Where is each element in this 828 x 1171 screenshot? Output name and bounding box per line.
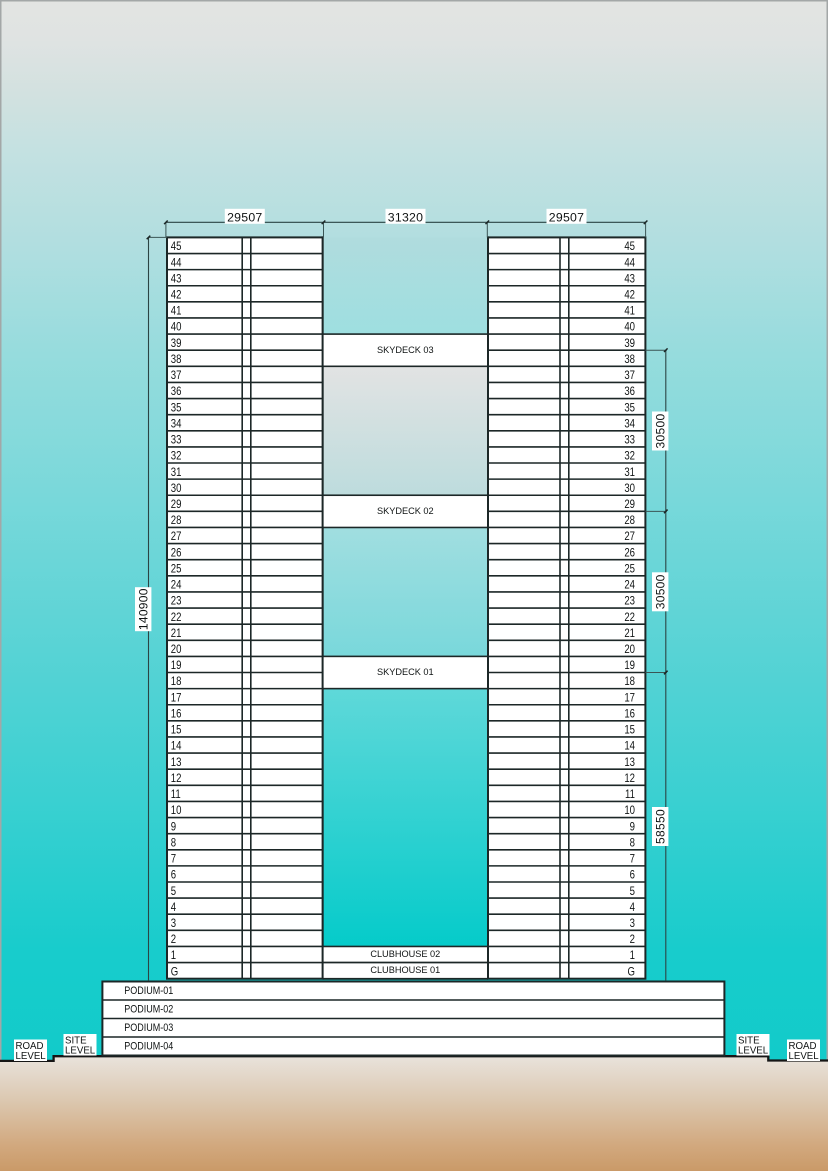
svg-text:4: 4 bbox=[171, 901, 176, 914]
svg-text:38: 38 bbox=[171, 353, 182, 366]
svg-text:19: 19 bbox=[624, 659, 635, 672]
svg-text:39: 39 bbox=[624, 337, 635, 350]
svg-text:LEVEL: LEVEL bbox=[65, 1045, 96, 1056]
svg-text:41: 41 bbox=[171, 305, 182, 318]
svg-text:29507: 29507 bbox=[227, 210, 262, 224]
svg-text:LEVEL: LEVEL bbox=[16, 1051, 47, 1062]
svg-text:15: 15 bbox=[171, 724, 182, 737]
svg-text:26: 26 bbox=[171, 546, 182, 559]
svg-text:8: 8 bbox=[171, 836, 176, 849]
svg-text:8: 8 bbox=[630, 836, 635, 849]
svg-text:SKYDECK 03: SKYDECK 03 bbox=[377, 345, 434, 355]
svg-text:SKYDECK 02: SKYDECK 02 bbox=[377, 506, 434, 516]
svg-text:G: G bbox=[628, 965, 635, 978]
svg-text:25: 25 bbox=[171, 563, 182, 576]
svg-text:25: 25 bbox=[624, 563, 635, 576]
svg-text:41: 41 bbox=[624, 305, 635, 318]
svg-text:30: 30 bbox=[171, 482, 182, 495]
svg-text:2: 2 bbox=[171, 933, 176, 946]
svg-text:36: 36 bbox=[171, 385, 182, 398]
svg-text:10: 10 bbox=[624, 804, 635, 817]
svg-text:26: 26 bbox=[624, 546, 635, 559]
svg-text:33: 33 bbox=[171, 434, 182, 447]
svg-text:35: 35 bbox=[624, 401, 635, 414]
svg-text:7: 7 bbox=[630, 853, 635, 866]
svg-text:15: 15 bbox=[624, 724, 635, 737]
svg-text:24: 24 bbox=[171, 579, 182, 592]
svg-text:PODIUM-02: PODIUM-02 bbox=[124, 1004, 173, 1016]
svg-text:23: 23 bbox=[624, 595, 635, 608]
svg-text:11: 11 bbox=[625, 788, 635, 801]
svg-text:16: 16 bbox=[171, 708, 182, 721]
svg-text:22: 22 bbox=[171, 611, 182, 624]
svg-text:LEVEL: LEVEL bbox=[738, 1045, 769, 1056]
svg-text:32: 32 bbox=[624, 450, 635, 463]
svg-text:38: 38 bbox=[624, 353, 635, 366]
svg-text:37: 37 bbox=[624, 369, 635, 382]
svg-text:30500: 30500 bbox=[654, 414, 668, 449]
svg-text:31: 31 bbox=[624, 466, 635, 479]
svg-text:CLUBHOUSE 01: CLUBHOUSE 01 bbox=[370, 965, 440, 975]
svg-text:20: 20 bbox=[624, 643, 635, 656]
svg-text:9: 9 bbox=[630, 820, 635, 833]
svg-text:40: 40 bbox=[624, 321, 635, 334]
svg-text:33: 33 bbox=[624, 434, 635, 447]
svg-text:PODIUM-03: PODIUM-03 bbox=[124, 1022, 173, 1034]
svg-text:10: 10 bbox=[171, 804, 182, 817]
svg-text:11: 11 bbox=[171, 788, 181, 801]
svg-text:29: 29 bbox=[624, 498, 635, 511]
svg-text:32: 32 bbox=[171, 450, 182, 463]
svg-text:40: 40 bbox=[171, 321, 182, 334]
svg-text:18: 18 bbox=[171, 675, 182, 688]
svg-text:9: 9 bbox=[171, 820, 176, 833]
svg-text:G: G bbox=[171, 965, 178, 978]
svg-text:20: 20 bbox=[171, 643, 182, 656]
svg-text:28: 28 bbox=[171, 514, 182, 527]
svg-text:28: 28 bbox=[624, 514, 635, 527]
svg-text:PODIUM-04: PODIUM-04 bbox=[124, 1041, 173, 1053]
svg-text:42: 42 bbox=[171, 289, 182, 302]
svg-text:14: 14 bbox=[624, 740, 635, 753]
svg-text:1: 1 bbox=[630, 949, 635, 962]
svg-text:21: 21 bbox=[171, 627, 182, 640]
svg-text:140900: 140900 bbox=[137, 588, 151, 630]
svg-text:3: 3 bbox=[630, 917, 635, 930]
svg-text:36: 36 bbox=[624, 385, 635, 398]
svg-text:21: 21 bbox=[624, 627, 635, 640]
svg-text:29: 29 bbox=[171, 498, 182, 511]
svg-text:44: 44 bbox=[171, 256, 182, 269]
svg-text:4: 4 bbox=[630, 901, 635, 914]
svg-text:22: 22 bbox=[624, 611, 635, 624]
svg-text:3: 3 bbox=[171, 917, 176, 930]
svg-text:18: 18 bbox=[624, 675, 635, 688]
svg-text:44: 44 bbox=[624, 256, 635, 269]
svg-text:12: 12 bbox=[624, 772, 635, 785]
svg-text:19: 19 bbox=[171, 659, 182, 672]
svg-text:43: 43 bbox=[624, 272, 635, 285]
svg-text:6: 6 bbox=[630, 869, 635, 882]
svg-text:45: 45 bbox=[171, 240, 182, 253]
svg-text:35: 35 bbox=[171, 401, 182, 414]
svg-text:16: 16 bbox=[624, 708, 635, 721]
svg-text:SKYDECK 01: SKYDECK 01 bbox=[377, 667, 434, 677]
svg-text:27: 27 bbox=[624, 530, 635, 543]
svg-text:24: 24 bbox=[624, 579, 635, 592]
svg-text:1: 1 bbox=[171, 949, 176, 962]
svg-text:43: 43 bbox=[171, 272, 182, 285]
svg-text:31320: 31320 bbox=[388, 210, 423, 224]
svg-text:37: 37 bbox=[171, 369, 182, 382]
svg-text:13: 13 bbox=[624, 756, 635, 769]
svg-text:23: 23 bbox=[171, 595, 182, 608]
svg-text:14: 14 bbox=[171, 740, 182, 753]
svg-text:30500: 30500 bbox=[654, 574, 668, 609]
svg-text:31: 31 bbox=[171, 466, 182, 479]
svg-text:27: 27 bbox=[171, 530, 182, 543]
svg-text:13: 13 bbox=[171, 756, 182, 769]
svg-text:CLUBHOUSE 02: CLUBHOUSE 02 bbox=[370, 949, 440, 959]
svg-text:12: 12 bbox=[171, 772, 182, 785]
svg-text:29507: 29507 bbox=[549, 210, 584, 224]
svg-text:39: 39 bbox=[171, 337, 182, 350]
svg-text:30: 30 bbox=[624, 482, 635, 495]
svg-text:34: 34 bbox=[624, 417, 635, 430]
svg-text:58550: 58550 bbox=[654, 809, 668, 844]
svg-text:LEVEL: LEVEL bbox=[789, 1051, 820, 1062]
svg-text:45: 45 bbox=[624, 240, 635, 253]
svg-text:7: 7 bbox=[171, 853, 176, 866]
svg-text:2: 2 bbox=[630, 933, 635, 946]
svg-text:17: 17 bbox=[624, 691, 635, 704]
svg-text:34: 34 bbox=[171, 417, 182, 430]
svg-text:5: 5 bbox=[171, 885, 176, 898]
svg-text:42: 42 bbox=[624, 289, 635, 302]
svg-text:PODIUM-01: PODIUM-01 bbox=[124, 985, 173, 997]
svg-text:6: 6 bbox=[171, 869, 176, 882]
svg-text:5: 5 bbox=[630, 885, 635, 898]
svg-text:17: 17 bbox=[171, 691, 182, 704]
